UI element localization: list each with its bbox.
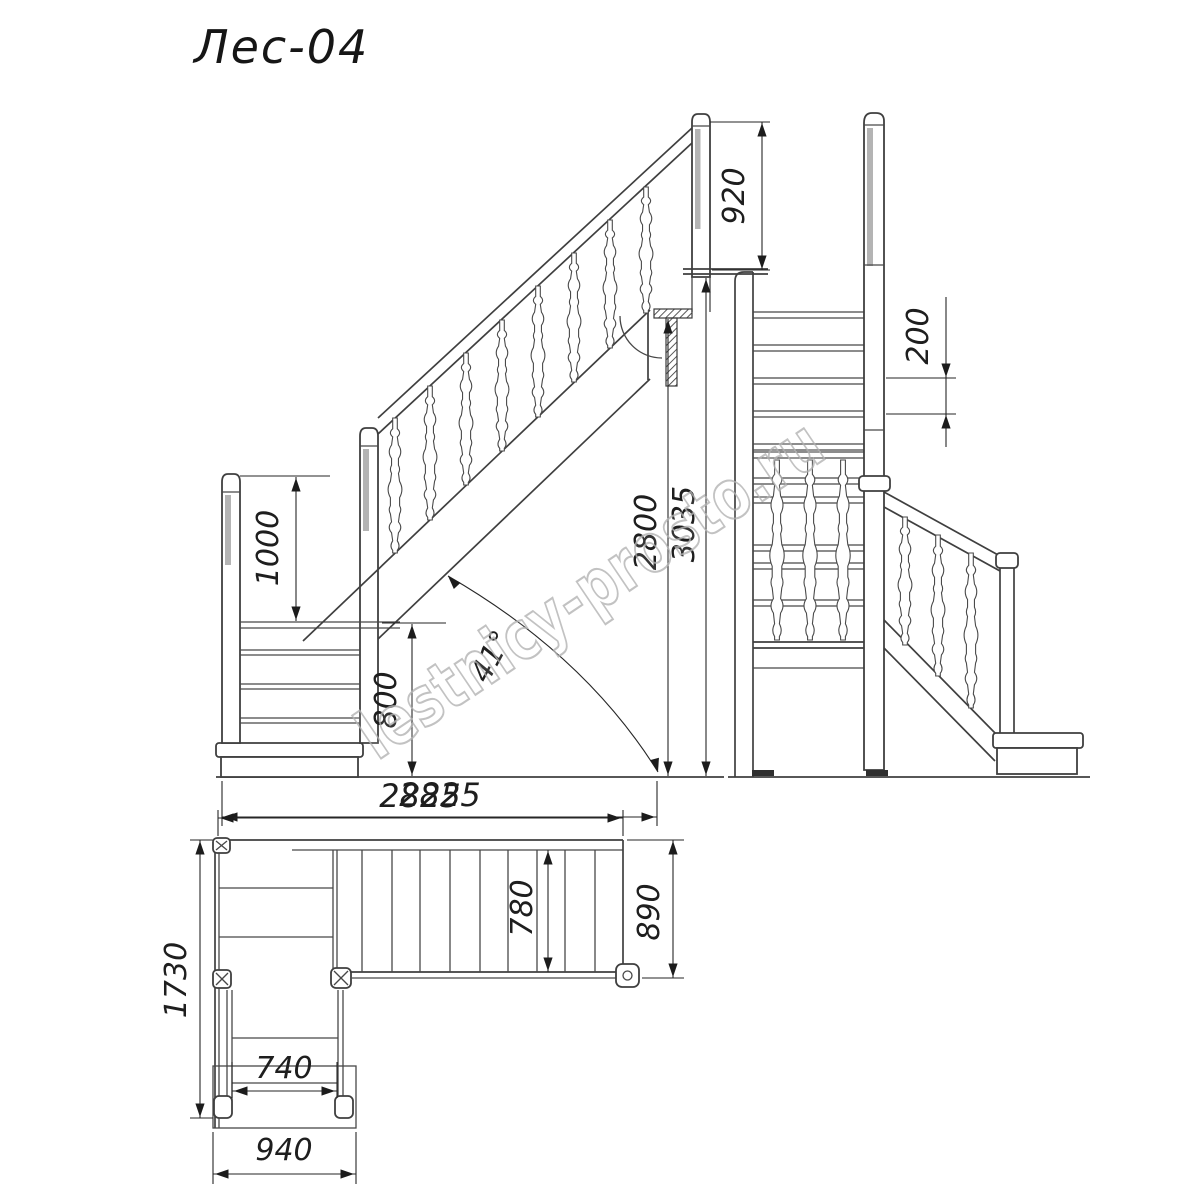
- front-balusters: [388, 187, 653, 553]
- floor-slab-section: [620, 309, 692, 386]
- dim-plan-890: 890: [627, 840, 684, 978]
- dim-plan-1730: 1730: [159, 840, 213, 1118]
- dim-plan-740: 740: [232, 1051, 337, 1098]
- dim-front-920: 920: [710, 122, 770, 270]
- side-lower-railing: [884, 492, 1000, 761]
- drawing-title: Лес-04: [192, 20, 369, 74]
- svg-text:740: 740: [255, 1051, 312, 1086]
- front-top-newel-post: [692, 114, 710, 277]
- svg-text:890: 890: [632, 883, 667, 940]
- dim-plan-940: 940: [213, 1132, 356, 1184]
- plan-upper-flight-steps: [333, 850, 595, 972]
- drawing-sheet: Лес-04: [0, 0, 1200, 1200]
- dim-plan-2825: 2825: [218, 777, 623, 836]
- svg-text:2825: 2825: [379, 777, 460, 815]
- svg-text:940: 940: [255, 1133, 312, 1168]
- svg-text:780: 780: [505, 879, 540, 936]
- watermark-text: lestnicy-prosto.ru: [343, 405, 839, 775]
- svg-text:200: 200: [901, 307, 936, 364]
- plan-handrail-end-cap: [616, 964, 639, 987]
- dim-front-1000: 1000: [240, 476, 330, 621]
- dim-plan-780: 780: [505, 850, 553, 972]
- staircase-technical-drawing: Лес-04: [0, 0, 1200, 1200]
- svg-text:1730: 1730: [159, 942, 194, 1018]
- side-bottom-newel-cap: [996, 553, 1018, 568]
- svg-text:920: 920: [717, 167, 752, 224]
- svg-text:1000: 1000: [251, 510, 286, 586]
- dim-side-200: 200: [886, 297, 956, 447]
